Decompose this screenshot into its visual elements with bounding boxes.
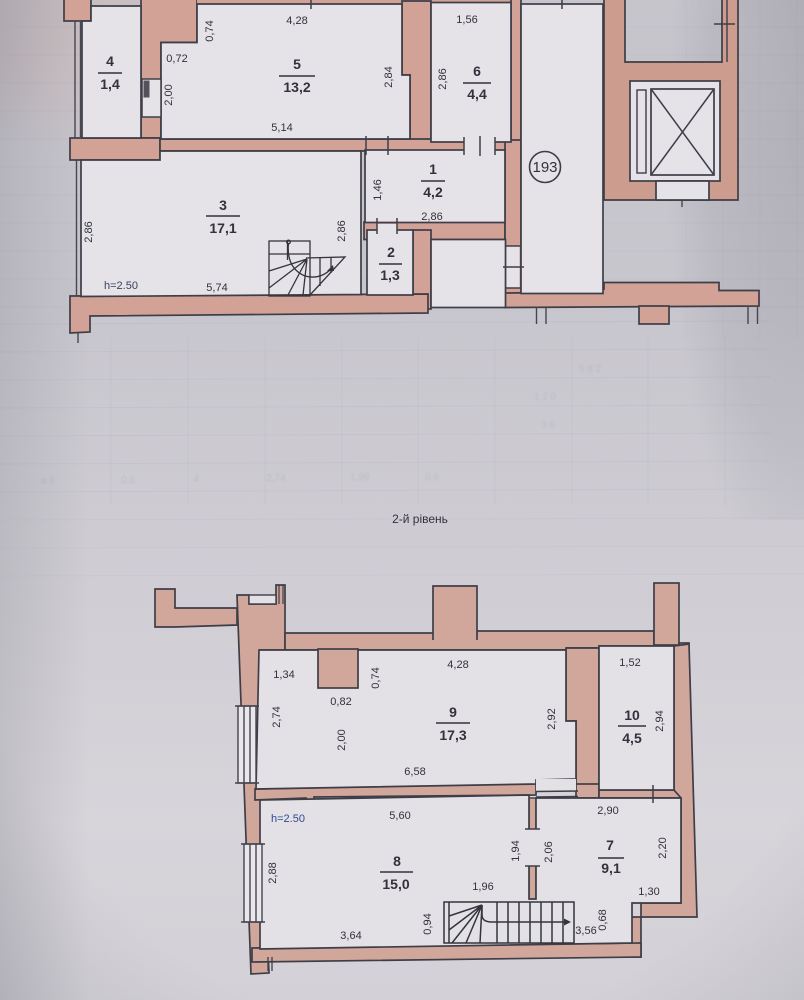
svg-text:17,1: 17,1 [209,220,236,236]
svg-text:9,1: 9,1 [601,860,621,876]
svg-text:1,4: 1,4 [100,76,120,92]
svg-text:5: 5 [293,56,301,72]
svg-text:13,2: 13,2 [283,79,310,95]
svg-text:2,74: 2,74 [266,473,286,484]
svg-text:5,14: 5,14 [271,122,292,134]
svg-text:2,86: 2,86 [336,220,348,241]
svg-text:1: 1 [429,161,437,177]
svg-text:193: 193 [532,159,557,176]
svg-text:0,74: 0,74 [370,667,382,688]
svg-text:2: 2 [387,244,395,260]
svg-text:1,56: 1,56 [456,14,477,26]
svg-text:2,06: 2,06 [543,841,555,862]
svg-text:2,90: 2,90 [597,805,618,817]
svg-text:0,6: 0,6 [425,472,439,483]
svg-text:2,00: 2,00 [163,84,175,105]
svg-text:2,86: 2,86 [421,211,442,223]
svg-text:3: 3 [219,197,227,213]
svg-text:2,88: 2,88 [267,862,279,883]
svg-text:1,98: 1,98 [350,472,370,483]
svg-text:15,0: 15,0 [382,876,409,892]
svg-text:4,2: 4,2 [423,184,443,200]
svg-text:0,94: 0,94 [422,913,434,934]
svg-text:2,92: 2,92 [546,708,558,729]
svg-text:1,46: 1,46 [372,179,384,200]
svg-text:4: 4 [193,474,199,485]
svg-text:7: 7 [606,837,614,853]
svg-text:2,94: 2,94 [654,710,666,731]
svg-text:h=2.50: h=2.50 [271,813,305,825]
svg-text:4: 4 [106,53,114,69]
svg-text:2,86: 2,86 [83,221,95,242]
svg-text:0,68: 0,68 [597,909,609,930]
svg-text:5 8 2: 5 8 2 [579,364,602,375]
svg-text:2,86: 2,86 [437,68,449,89]
svg-text:2,74: 2,74 [271,706,283,727]
svg-text:3 6: 3 6 [541,420,555,431]
svg-text:8: 8 [393,853,401,869]
svg-text:1 2 0: 1 2 0 [534,392,557,403]
svg-text:1,34: 1,34 [273,669,294,681]
svg-text:4,4: 4,4 [467,86,487,102]
svg-text:2,00: 2,00 [336,729,348,750]
svg-text:5,74: 5,74 [206,282,227,294]
svg-text:в 5: в 5 [41,476,55,487]
svg-text:9: 9 [449,704,457,720]
svg-text:4,28: 4,28 [286,15,307,27]
svg-text:10: 10 [624,707,640,723]
svg-text:1,30: 1,30 [638,886,659,898]
svg-text:0,82: 0,82 [330,696,351,708]
svg-text:2,84: 2,84 [383,66,395,87]
svg-text:4,5: 4,5 [622,730,642,746]
svg-text:3,64: 3,64 [340,930,361,942]
svg-text:5,60: 5,60 [389,810,410,822]
svg-text:h=2.50: h=2.50 [104,280,138,292]
svg-text:2,20: 2,20 [657,837,669,858]
svg-text:6,58: 6,58 [404,766,425,778]
svg-text:1,94: 1,94 [510,840,522,861]
svg-text:17,3: 17,3 [439,727,466,743]
svg-text:2-й рівень: 2-й рівень [392,512,448,526]
svg-text:1,96: 1,96 [472,881,493,893]
svg-text:0,6: 0,6 [121,475,135,486]
svg-text:0,72: 0,72 [166,53,187,65]
svg-text:1,52: 1,52 [619,657,640,669]
svg-text:0,74: 0,74 [204,20,216,41]
svg-text:4,28: 4,28 [447,659,468,671]
svg-text:1,3: 1,3 [380,267,400,283]
svg-text:3,56: 3,56 [575,925,596,937]
svg-text:6: 6 [473,63,481,79]
